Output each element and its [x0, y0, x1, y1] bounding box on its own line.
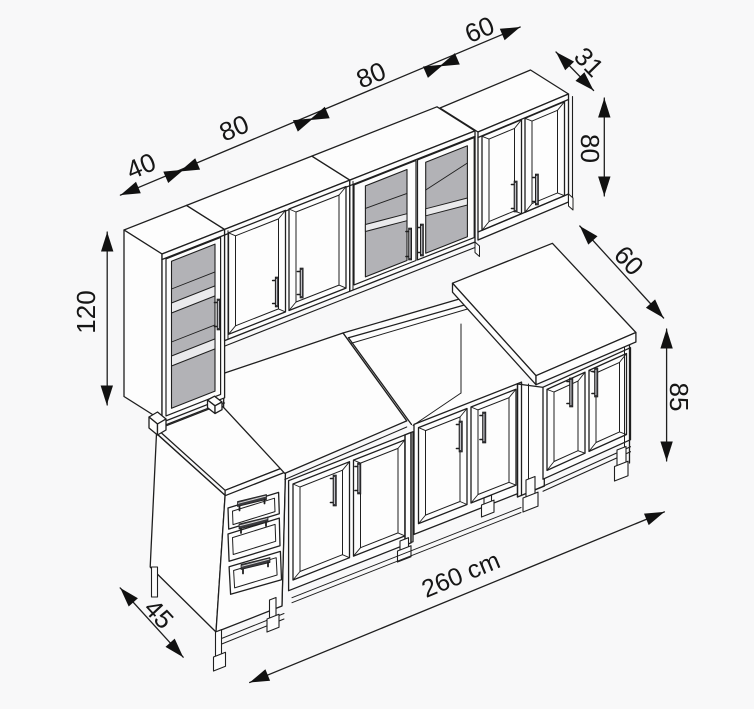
svg-text:80: 80 — [575, 134, 605, 163]
svg-text:120: 120 — [71, 290, 101, 333]
svg-text:85: 85 — [664, 383, 694, 412]
